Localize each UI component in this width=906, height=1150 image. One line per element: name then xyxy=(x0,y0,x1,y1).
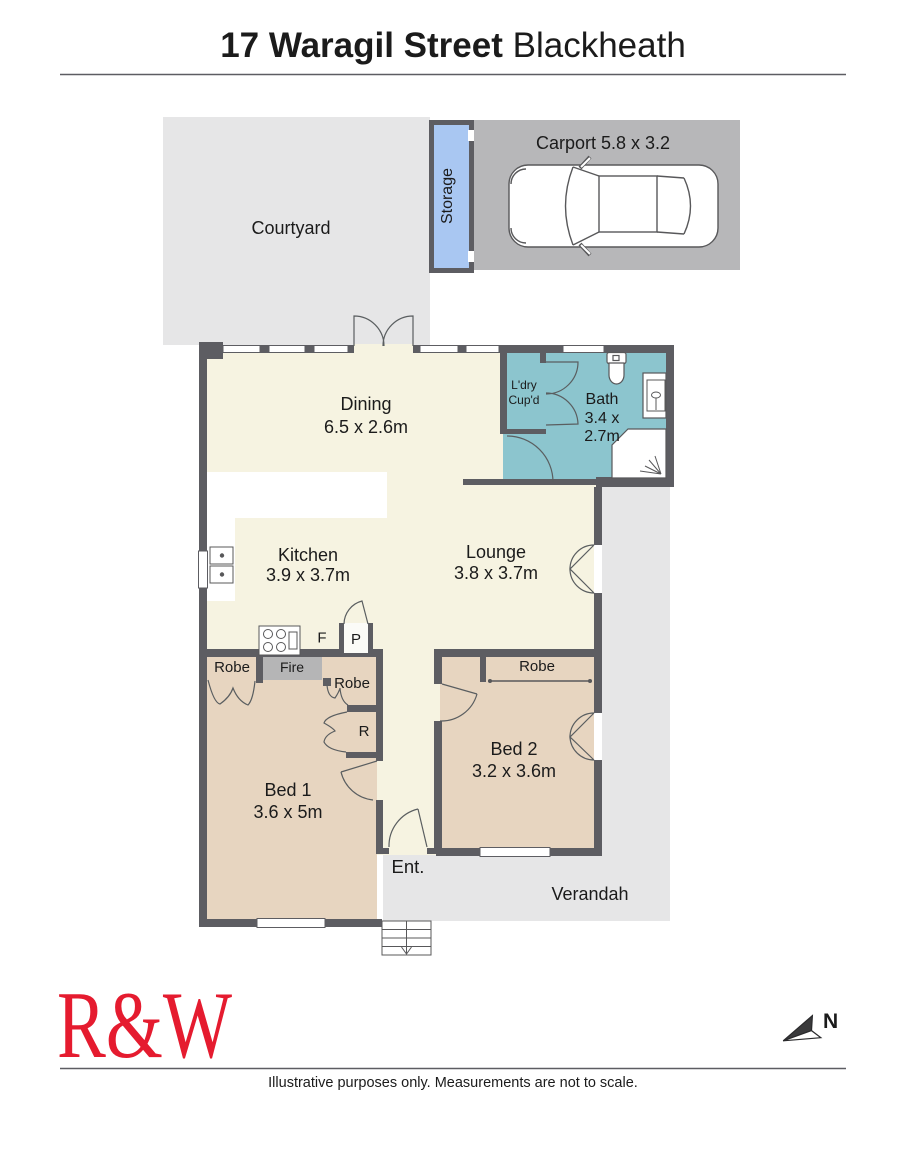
svg-text:3.4 x: 3.4 x xyxy=(585,410,620,427)
svg-text:Storage: Storage xyxy=(439,168,456,224)
svg-text:17 Waragil Street Blackheath: 17 Waragil Street Blackheath xyxy=(220,26,686,65)
svg-text:L'dry: L'dry xyxy=(511,378,537,392)
svg-text:3.6 x 5m: 3.6 x 5m xyxy=(253,802,322,822)
svg-text:R&W: R&W xyxy=(57,972,232,1078)
svg-text:Courtyard: Courtyard xyxy=(251,218,330,238)
svg-text:Fire: Fire xyxy=(280,659,304,675)
svg-text:Robe: Robe xyxy=(519,658,555,675)
svg-text:3.8 x 3.7m: 3.8 x 3.7m xyxy=(454,563,538,583)
svg-text:Bath: Bath xyxy=(586,391,619,408)
svg-text:Illustrative purposes only. Me: Illustrative purposes only. Measurements… xyxy=(268,1075,638,1091)
svg-text:Robe: Robe xyxy=(214,659,250,676)
svg-text:Carport 5.8 x 3.2: Carport 5.8 x 3.2 xyxy=(536,133,670,153)
svg-text:Verandah: Verandah xyxy=(551,884,628,904)
svg-text:3.2 x 3.6m: 3.2 x 3.6m xyxy=(472,761,556,781)
svg-text:3.9 x 3.7m: 3.9 x 3.7m xyxy=(266,565,350,585)
svg-text:Kitchen: Kitchen xyxy=(278,545,338,565)
svg-text:Cup'd: Cup'd xyxy=(509,393,540,407)
svg-text:Bed 1: Bed 1 xyxy=(264,780,311,800)
svg-text:6.5 x 2.6m: 6.5 x 2.6m xyxy=(324,417,408,437)
svg-text:P: P xyxy=(351,631,361,648)
svg-text:N: N xyxy=(823,1010,838,1033)
svg-text:Lounge: Lounge xyxy=(466,542,526,562)
svg-text:2.7m: 2.7m xyxy=(584,428,620,445)
svg-text:F: F xyxy=(317,630,326,647)
svg-text:Dining: Dining xyxy=(340,394,391,414)
svg-text:Robe: Robe xyxy=(334,675,370,692)
svg-text:Bed 2: Bed 2 xyxy=(490,739,537,759)
svg-text:R: R xyxy=(359,723,370,740)
svg-text:Ent.: Ent. xyxy=(392,856,425,877)
